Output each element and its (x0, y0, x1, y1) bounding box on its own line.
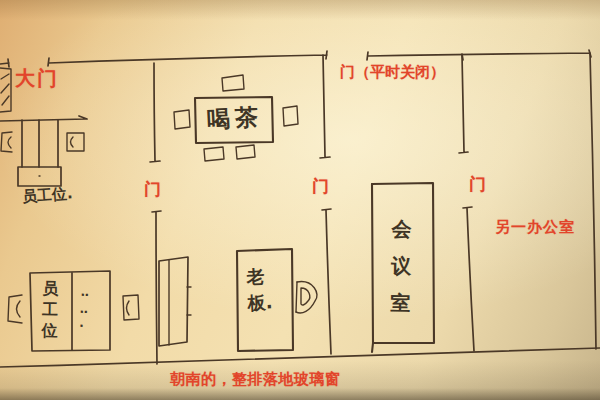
reception-chair-left (1, 132, 12, 152)
wall-right (590, 53, 596, 349)
south-window-label: 朝南的，整排落地玻璃窗 (170, 370, 341, 389)
wall-top (0, 50, 591, 67)
floorplan-photo: 大门 门（平时关闭） 门 门 门 另一办公室 朝南的，整排落地玻璃窗 员工位. … (0, 0, 600, 400)
floorplan-linework (0, 0, 600, 400)
open-door-leaf (159, 257, 191, 346)
reception-chair-right (67, 133, 84, 151)
staff-chair-right (123, 295, 139, 320)
boss-chair (296, 282, 317, 313)
door-label-right: 门 (469, 173, 486, 196)
main-door-label: 大门 (15, 65, 59, 92)
staff-seat-label: 员工位 (41, 278, 61, 341)
wall-mid-partition (320, 55, 331, 354)
staff-chair-left (8, 295, 22, 323)
reception-seat-label: 员工位. (21, 184, 73, 206)
meeting-room-label: 会议室 (390, 211, 415, 322)
boss-label: 老板. (246, 263, 270, 316)
top-door-label: 门（平时关闭） (340, 63, 445, 82)
other-office-label: 另一办公室 (495, 218, 575, 237)
tea-table-label: 喝茶 (195, 101, 275, 136)
door-label-left: 门 (144, 178, 161, 201)
wall-right-partition (459, 55, 474, 351)
door-label-middle: 门 (312, 175, 329, 198)
entry-sign-box (0, 68, 11, 112)
